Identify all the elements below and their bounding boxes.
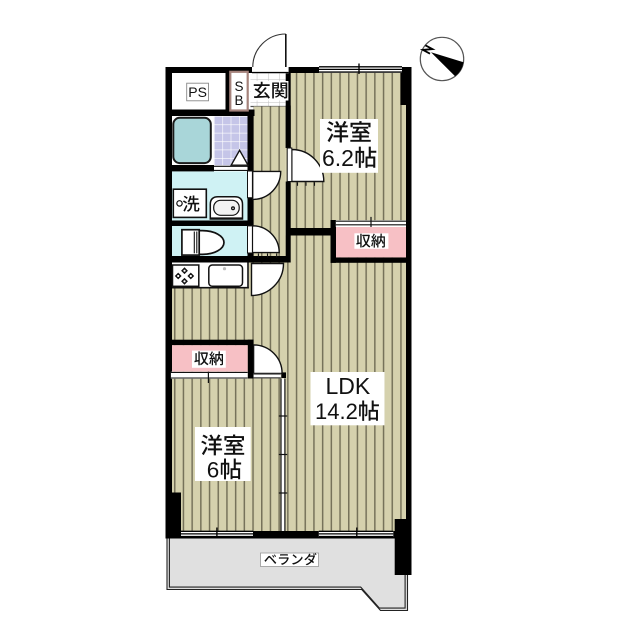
svg-text:6.2: 6.2 bbox=[322, 145, 354, 171]
svg-text:B: B bbox=[234, 93, 243, 108]
svg-text:PS: PS bbox=[188, 84, 207, 100]
svg-text:LDK: LDK bbox=[326, 373, 371, 399]
svg-text:S: S bbox=[234, 79, 243, 94]
svg-text:14.2: 14.2 bbox=[315, 399, 358, 424]
svg-text:6: 6 bbox=[207, 458, 220, 483]
